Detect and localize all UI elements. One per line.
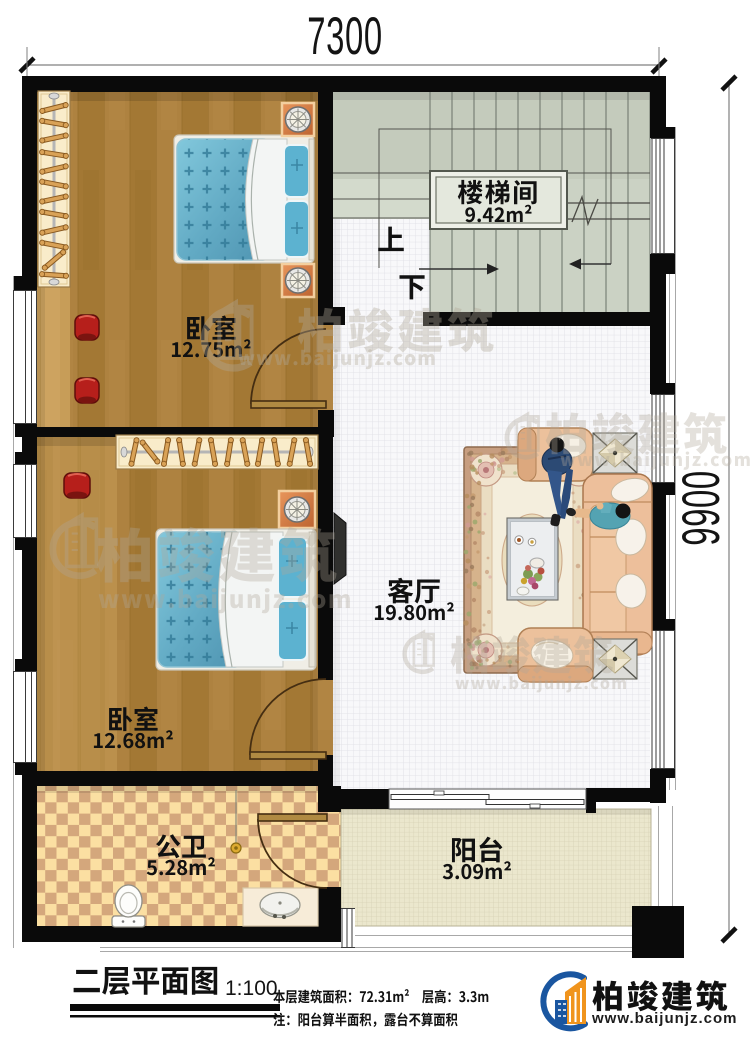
- svg-text:9900: 9900: [672, 470, 731, 546]
- svg-text:www.baijunjz.com: www.baijunjz.com: [591, 1010, 737, 1027]
- svg-text:7300: 7300: [307, 7, 383, 66]
- svg-text:1:100: 1:100: [225, 977, 278, 1000]
